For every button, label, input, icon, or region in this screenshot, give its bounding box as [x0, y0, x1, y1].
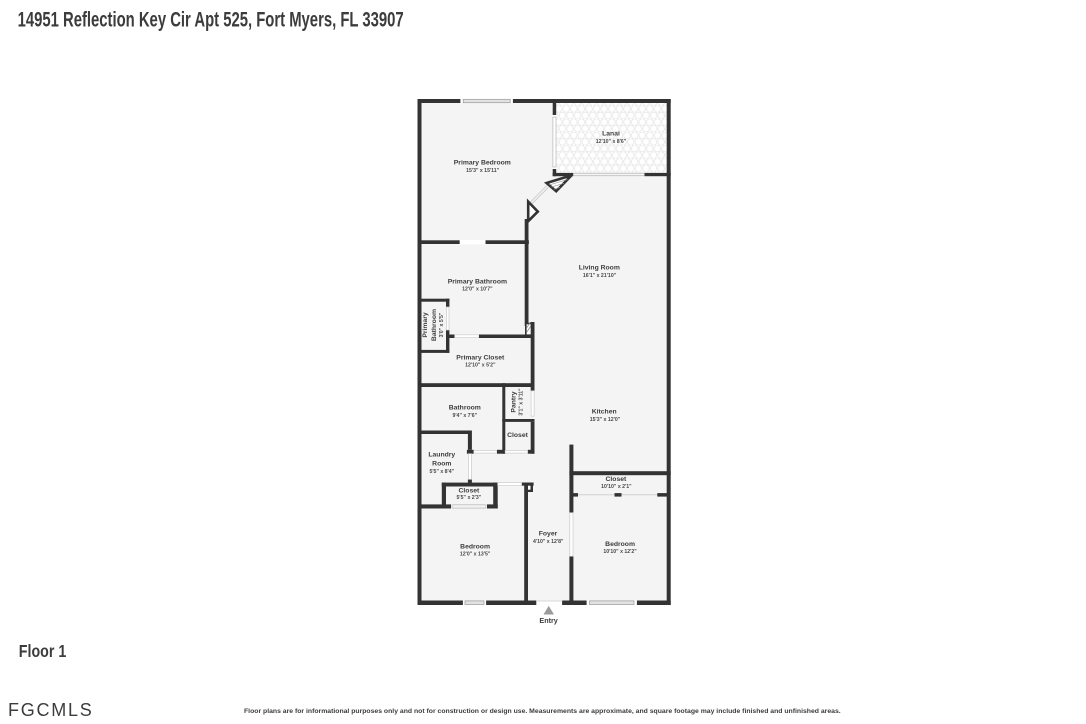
svg-text:5'5" x 2'3": 5'5" x 2'3" [457, 495, 482, 501]
svg-text:3'1" x 3'11": 3'1" x 3'11" [518, 388, 524, 416]
svg-text:5'5" x 8'4": 5'5" x 8'4" [429, 469, 454, 475]
svg-text:Closet: Closet [606, 476, 628, 483]
svg-text:14951 Reflection Key Cir Apt 5: 14951 Reflection Key Cir Apt 525, Fort M… [18, 9, 404, 32]
svg-text:Bedroom: Bedroom [460, 544, 490, 551]
svg-text:Primary Closet: Primary Closet [456, 354, 505, 361]
svg-text:Primary: Primary [422, 312, 429, 338]
svg-text:Foyer: Foyer [539, 531, 558, 538]
svg-text:10'10" x 12'2": 10'10" x 12'2" [603, 549, 637, 555]
svg-text:12'0" x 13'5": 12'0" x 13'5" [460, 552, 491, 558]
svg-text:4'10" x 12'8": 4'10" x 12'8" [533, 539, 564, 545]
svg-text:Bathroom: Bathroom [431, 309, 438, 341]
svg-text:Room: Room [432, 461, 451, 468]
svg-text:Living Room: Living Room [579, 264, 620, 271]
svg-text:12'10" x 8'6": 12'10" x 8'6" [596, 139, 627, 145]
svg-text:Kitchen: Kitchen [592, 409, 617, 416]
svg-text:Primary Bedroom: Primary Bedroom [454, 160, 511, 167]
svg-text:Floor plans are for informatio: Floor plans are for informational purpos… [244, 708, 841, 715]
svg-text:FGCMLS: FGCMLS [8, 700, 94, 720]
svg-text:12'0" x 10'7": 12'0" x 10'7" [462, 286, 493, 292]
svg-text:Bathroom: Bathroom [449, 405, 481, 412]
svg-text:10'10" x 2'1": 10'10" x 2'1" [601, 484, 632, 490]
svg-text:15'3" x 12'0": 15'3" x 12'0" [590, 417, 621, 423]
svg-text:Closet: Closet [507, 432, 529, 439]
svg-text:Primary Bathroom: Primary Bathroom [448, 278, 507, 285]
svg-text:3'0" x 5'5": 3'0" x 5'5" [439, 312, 445, 337]
svg-text:15'3" x 15'11": 15'3" x 15'11" [466, 168, 500, 174]
svg-text:Floor 1: Floor 1 [19, 641, 67, 661]
svg-text:Pantry: Pantry [510, 391, 517, 412]
svg-text:12'10" x 5'2": 12'10" x 5'2" [465, 362, 496, 368]
svg-text:16'1" x 21'10": 16'1" x 21'10" [583, 273, 617, 279]
svg-text:Laundry: Laundry [428, 452, 455, 459]
svg-text:Lanai: Lanai [602, 131, 620, 138]
svg-text:9'4" x 7'6": 9'4" x 7'6" [452, 413, 477, 419]
svg-text:Entry: Entry [539, 616, 557, 625]
svg-text:Closet: Closet [459, 488, 481, 495]
svg-text:Bedroom: Bedroom [605, 541, 635, 548]
